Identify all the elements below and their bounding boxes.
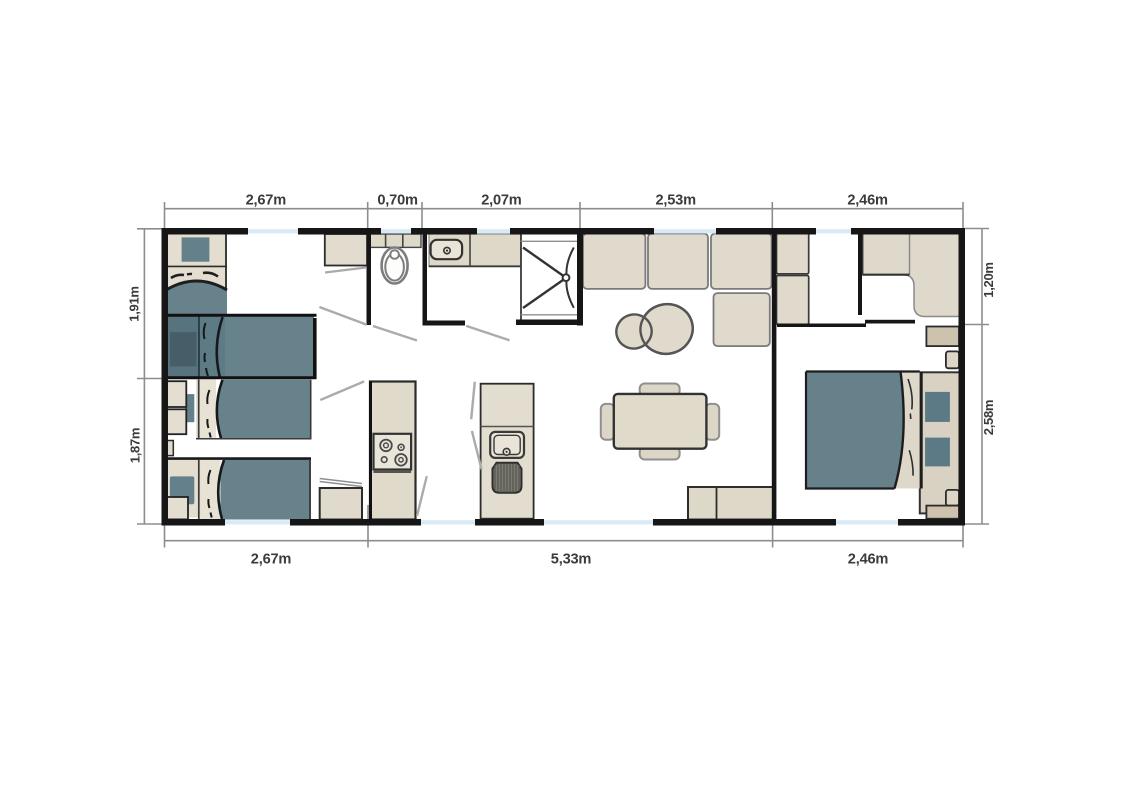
svg-text:2,58m: 2,58m [981, 400, 996, 435]
svg-text:2,46m: 2,46m [848, 552, 889, 568]
svg-text:5,33m: 5,33m [551, 552, 592, 568]
svg-text:1,20m: 1,20m [981, 262, 996, 297]
svg-text:2,67m: 2,67m [246, 192, 287, 208]
svg-text:0,70m: 0,70m [377, 192, 418, 208]
svg-text:2,53m: 2,53m [656, 192, 697, 208]
svg-text:2,67m: 2,67m [251, 552, 292, 568]
svg-text:2,07m: 2,07m [481, 192, 522, 208]
svg-text:1,87m: 1,87m [128, 428, 143, 463]
svg-text:1,91m: 1,91m [127, 286, 142, 321]
svg-text:2,46m: 2,46m [847, 192, 888, 208]
